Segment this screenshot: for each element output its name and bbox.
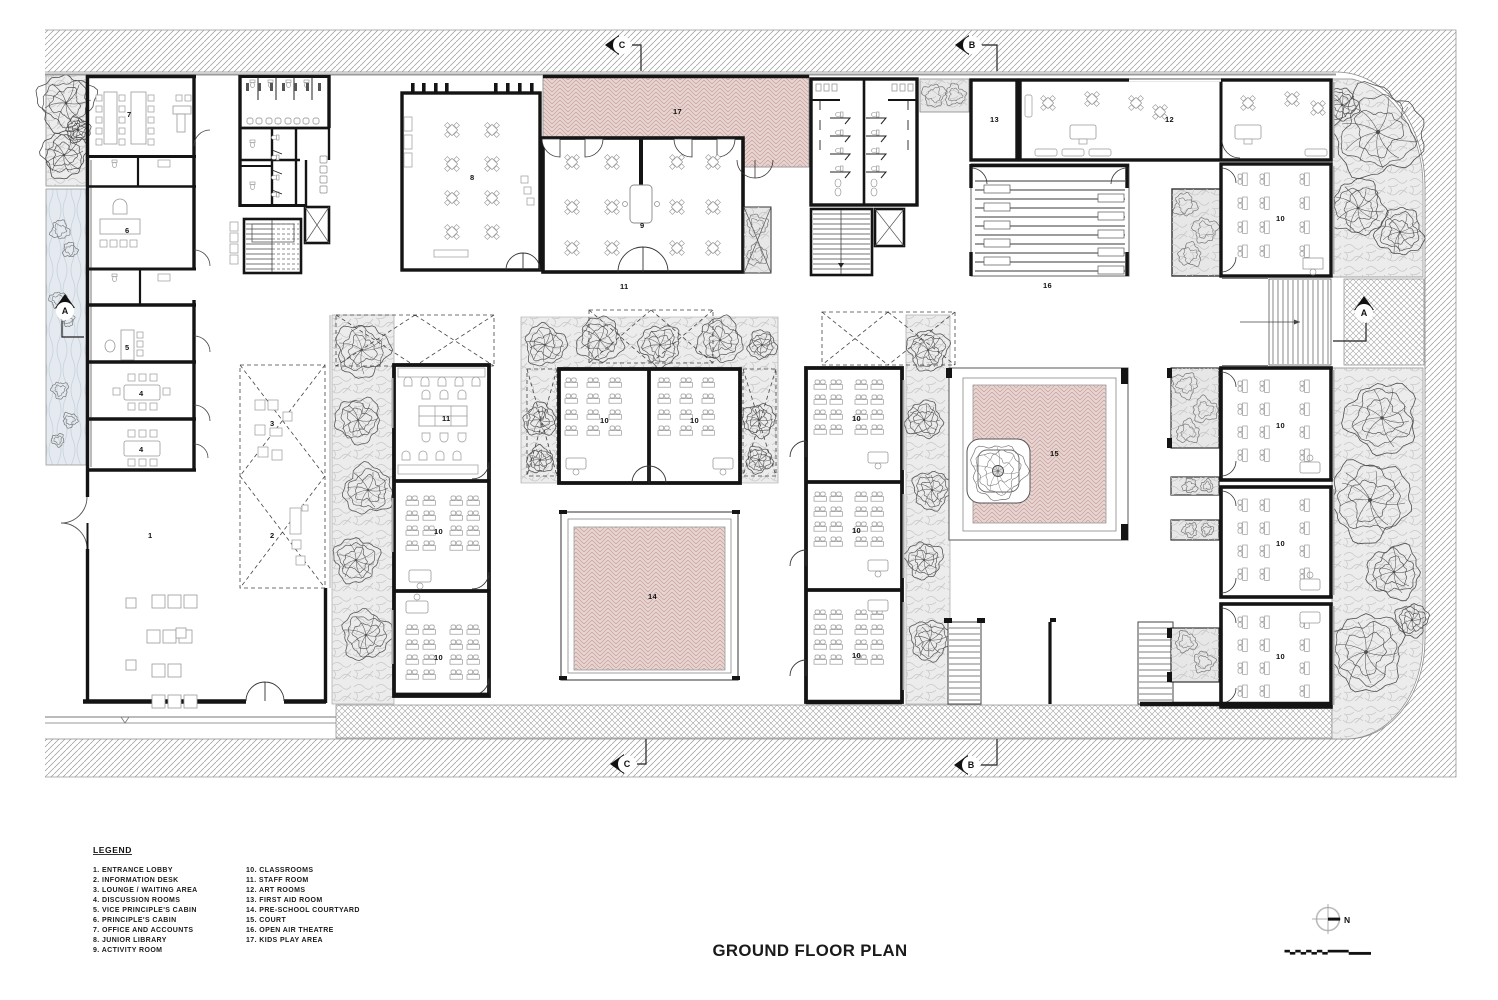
svg-text:10: 10 — [690, 416, 699, 425]
svg-text:N: N — [1344, 915, 1350, 925]
svg-text:5: 5 — [125, 343, 129, 352]
svg-text:10: 10 — [852, 651, 861, 660]
svg-text:3: 3 — [270, 419, 274, 428]
svg-text:10: 10 — [600, 416, 609, 425]
svg-text:10: 10 — [852, 414, 861, 423]
svg-text:7: 7 — [127, 110, 131, 119]
svg-text:10: 10 — [1276, 214, 1285, 223]
svg-text:16: 16 — [1043, 281, 1052, 290]
svg-text:1: 1 — [148, 531, 152, 540]
svg-text:15. COURT: 15. COURT — [246, 917, 286, 924]
svg-text:10: 10 — [434, 527, 443, 536]
svg-text:8. JUNIOR LIBRARY: 8. JUNIOR LIBRARY — [93, 937, 167, 944]
svg-text:8: 8 — [470, 173, 474, 182]
svg-text:10. CLASSROOMS: 10. CLASSROOMS — [246, 867, 313, 874]
svg-text:B: B — [968, 760, 975, 770]
svg-text:12. ART ROOMS: 12. ART ROOMS — [246, 887, 305, 894]
svg-text:5. VICE PRINCIPLE'S CABIN: 5. VICE PRINCIPLE'S CABIN — [93, 907, 197, 914]
svg-text:10: 10 — [852, 526, 861, 535]
svg-text:11. STAFF ROOM: 11. STAFF ROOM — [246, 877, 309, 884]
svg-text:4: 4 — [139, 445, 144, 454]
svg-text:2. INFORMATION DESK: 2. INFORMATION DESK — [93, 877, 179, 884]
svg-text:14. PRE-SCHOOL COURTYARD: 14. PRE-SCHOOL COURTYARD — [246, 907, 360, 914]
svg-text:C: C — [619, 40, 626, 50]
svg-text:B: B — [969, 40, 976, 50]
svg-text:6: 6 — [125, 226, 129, 235]
svg-text:11: 11 — [620, 282, 629, 291]
svg-text:6. PRINCIPLE'S CABIN: 6. PRINCIPLE'S CABIN — [93, 917, 177, 924]
svg-text:7. OFFICE AND ACCOUNTS: 7. OFFICE AND ACCOUNTS — [93, 927, 193, 934]
svg-text:1. ENTRANCE LOBBY: 1. ENTRANCE LOBBY — [93, 867, 173, 874]
svg-text:2: 2 — [270, 531, 274, 540]
svg-text:9. ACTIVITY ROOM: 9. ACTIVITY ROOM — [93, 947, 162, 954]
svg-text:13: 13 — [990, 115, 999, 124]
svg-text:4. DISCUSSION ROOMS: 4. DISCUSSION ROOMS — [93, 897, 180, 904]
svg-text:LEGEND: LEGEND — [93, 845, 132, 855]
svg-text:10: 10 — [1276, 652, 1285, 661]
svg-text:11: 11 — [442, 414, 451, 423]
svg-text:10: 10 — [1276, 539, 1285, 548]
svg-text:10: 10 — [1276, 421, 1285, 430]
svg-text:13. FIRST AID ROOM: 13. FIRST AID ROOM — [246, 897, 323, 904]
svg-text:15: 15 — [1050, 449, 1059, 458]
svg-text:9: 9 — [640, 221, 644, 230]
svg-text:17: 17 — [673, 107, 682, 116]
svg-text:GROUND FLOOR PLAN: GROUND FLOOR PLAN — [712, 941, 907, 960]
svg-text:17. KIDS PLAY AREA: 17. KIDS PLAY AREA — [246, 937, 323, 944]
svg-text:3. LOUNGE / WAITING AREA: 3. LOUNGE / WAITING AREA — [93, 887, 198, 894]
svg-text:A: A — [62, 306, 69, 316]
svg-text:16. OPEN AIR THEATRE: 16. OPEN AIR THEATRE — [246, 927, 334, 934]
svg-text:4: 4 — [139, 389, 144, 398]
svg-text:12: 12 — [1165, 115, 1174, 124]
svg-text:14: 14 — [648, 592, 657, 601]
svg-text:10: 10 — [434, 653, 443, 662]
svg-text:C: C — [624, 759, 631, 769]
svg-text:A: A — [1361, 308, 1368, 318]
